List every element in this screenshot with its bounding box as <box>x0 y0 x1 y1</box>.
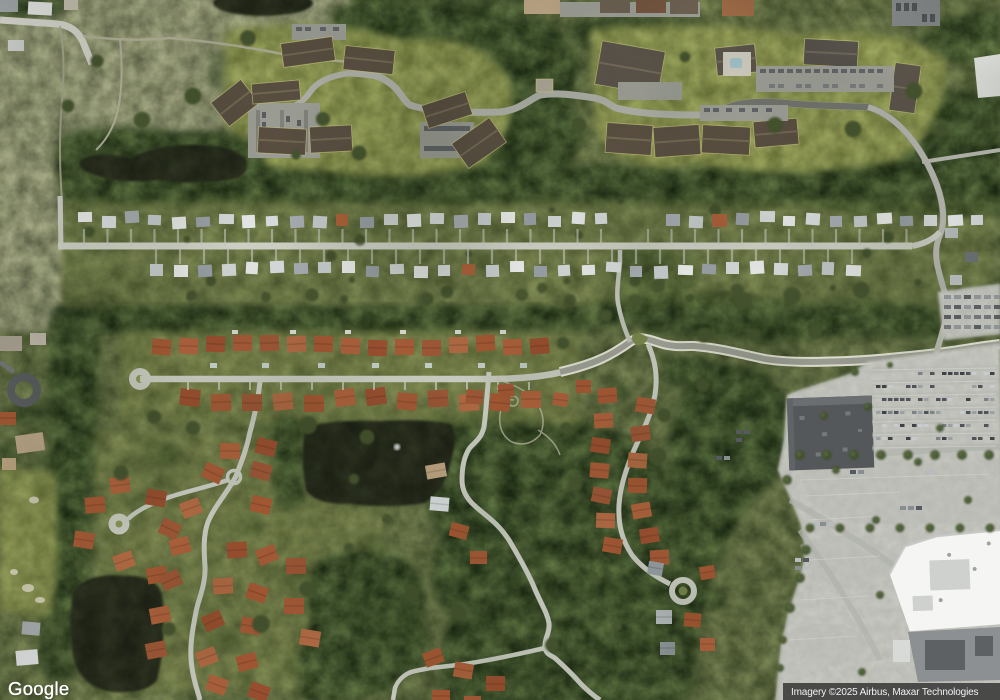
svg-text:Imagery ©2025 Airbus, Maxar Te: Imagery ©2025 Airbus, Maxar Technologies <box>791 687 979 698</box>
svg-text:Google: Google <box>8 678 69 699</box>
